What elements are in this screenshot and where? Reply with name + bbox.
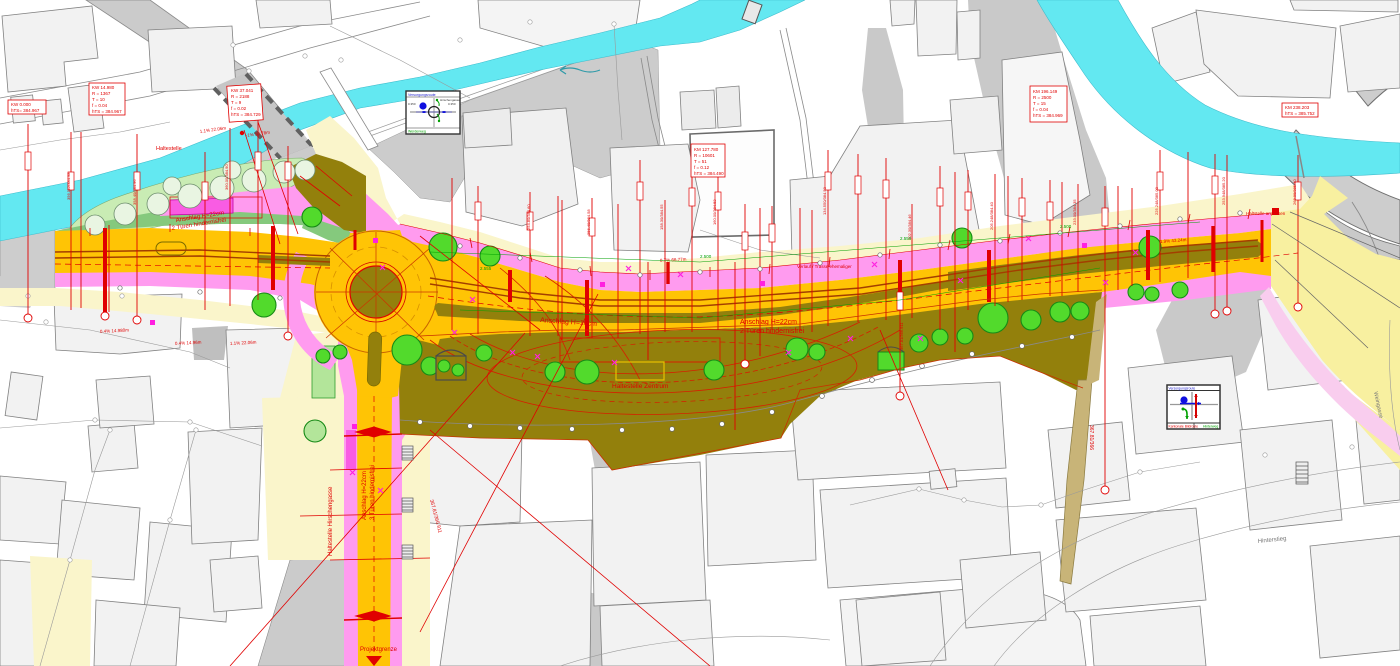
svg-text:T = 10: T = 10 bbox=[92, 97, 105, 102]
svg-text:2.555: 2.555 bbox=[480, 266, 492, 271]
svg-text:KW 14.980: KW 14.980 bbox=[92, 85, 115, 90]
svg-text:233.00/384.35: 233.00/384.35 bbox=[1072, 199, 1077, 225]
svg-text:KW 37.041: KW 37.041 bbox=[231, 88, 254, 93]
svg-text:Haltestelle: Haltestelle bbox=[156, 146, 182, 152]
svg-text:Hinterweg: Hinterweg bbox=[1203, 425, 1218, 429]
svg-text:Kantonale Bildroute: Kantonale Bildroute bbox=[1169, 425, 1199, 429]
svg-text:0.350: 0.350 bbox=[448, 102, 456, 106]
svg-text:KW 0.000: KW 0.000 bbox=[11, 102, 31, 107]
svg-text:R = 2188: R = 2188 bbox=[231, 94, 250, 99]
svg-text:Werderweg: Werderweg bbox=[408, 130, 426, 134]
svg-text:KM 238.203: KM 238.203 bbox=[1285, 105, 1310, 110]
svg-text:134.550/384.50: 134.550/384.50 bbox=[822, 186, 827, 215]
svg-text:358.40/384.96: 358.40/384.96 bbox=[132, 179, 137, 205]
svg-text:Versorgungsroute: Versorgungsroute bbox=[1169, 387, 1196, 391]
svg-text:T = 9: T = 9 bbox=[231, 100, 242, 105]
svg-text:256.40/384.58: 256.40/384.58 bbox=[586, 209, 591, 235]
svg-text:160.00/384.52: 160.00/384.52 bbox=[712, 199, 717, 225]
svg-text:hTS = 384.729: hTS = 384.729 bbox=[231, 112, 261, 117]
svg-text:hTS = 384.967: hTS = 384.967 bbox=[92, 109, 122, 114]
svg-text:254.80/384.60: 254.80/384.60 bbox=[526, 204, 531, 230]
svg-text:356.112/384.98: 356.112/384.98 bbox=[66, 172, 71, 200]
svg-text:2.500: 2.500 bbox=[1060, 224, 1072, 229]
svg-text:f = 0.12: f = 0.12 bbox=[694, 165, 710, 170]
svg-text:KM 196.149: KM 196.149 bbox=[1033, 89, 1058, 94]
svg-text:f = 0.02: f = 0.02 bbox=[231, 106, 247, 111]
svg-text:2 Türen hindernisfrei: 2 Türen hindernisfrei bbox=[740, 328, 805, 335]
svg-text:Haltestelle Zentrum: Haltestelle Zentrum bbox=[612, 383, 668, 390]
svg-text:hTS= 384.967: hTS= 384.967 bbox=[11, 108, 40, 113]
svg-text:Anschlag H=22cm: Anschlag H=22cm bbox=[362, 471, 368, 520]
svg-text:205.248/384.40: 205.248/384.40 bbox=[989, 201, 994, 230]
svg-text:Haltestelle Hirschengasse: Haltestelle Hirschengasse bbox=[328, 486, 334, 556]
svg-text:2.550: 2.550 bbox=[900, 236, 912, 241]
svg-text:2.500: 2.500 bbox=[700, 254, 712, 259]
svg-text:3 Türen hindernisfrei: 3 Türen hindernisfrei bbox=[370, 465, 376, 520]
svg-text:Verlauf / Trasse ehemaliger: Verlauf / Trasse ehemaliger bbox=[797, 264, 852, 269]
svg-text:0.350: 0.350 bbox=[408, 102, 416, 106]
svg-text:R = 1367: R = 1367 bbox=[92, 91, 111, 96]
svg-text:hTS = 384.969: hTS = 384.969 bbox=[1033, 113, 1063, 118]
svg-text:367.81/366: 367.81/366 bbox=[1088, 425, 1094, 450]
svg-text:Versorgungsroute: Versorgungsroute bbox=[408, 93, 436, 97]
svg-text:R = 2500: R = 2500 bbox=[1033, 95, 1052, 100]
svg-text:367.81/366.911: 367.81/366.911 bbox=[899, 322, 904, 350]
svg-text:158.30/384.55: 158.30/384.55 bbox=[659, 204, 664, 230]
svg-text:R = 10601: R = 10601 bbox=[694, 153, 715, 158]
svg-text:hTS = 384.490: hTS = 384.490 bbox=[694, 171, 724, 176]
svg-text:f = 0.04: f = 0.04 bbox=[92, 103, 108, 108]
svg-text:hTS = 385.752: hTS = 385.752 bbox=[1285, 111, 1315, 116]
svg-text:T = 51: T = 51 bbox=[694, 159, 707, 164]
svg-text:f = 0.04: f = 0.04 bbox=[1033, 107, 1049, 112]
svg-text:268.00/385.40: 268.00/385.40 bbox=[1292, 179, 1297, 205]
svg-text:360.00/384.90: 360.00/384.90 bbox=[224, 164, 229, 190]
svg-text:Projektgrenze: Projektgrenze bbox=[360, 647, 398, 653]
svg-text:253.948/385.20: 253.948/385.20 bbox=[1221, 176, 1226, 205]
svg-text:KM 127.780: KM 127.780 bbox=[694, 147, 719, 152]
svg-text:T = 15: T = 15 bbox=[1033, 101, 1046, 106]
svg-text:225.248/385.00: 225.248/385.00 bbox=[1154, 186, 1159, 215]
